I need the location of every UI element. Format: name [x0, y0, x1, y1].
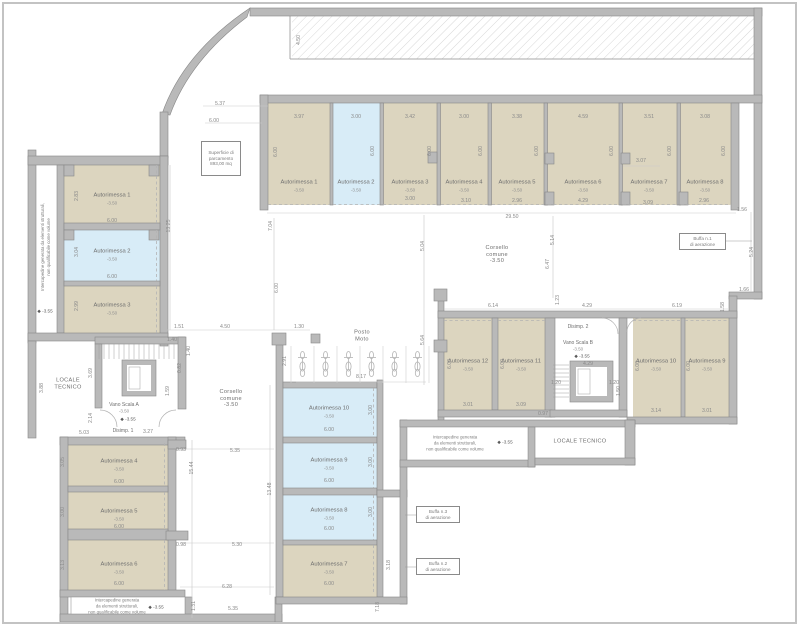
dim-label: 6.00	[114, 524, 124, 530]
dim-label: 1.40	[167, 337, 177, 343]
dim-label: 7.04	[268, 221, 274, 231]
room-label-autorimessa-1-left: Autorimessa 1	[93, 193, 130, 200]
dim-label: 2.14	[88, 413, 94, 423]
room-level: -3.50	[107, 310, 117, 315]
dim-label: 3.08	[700, 114, 710, 120]
elevation-marker: ◆ -3.55	[148, 604, 163, 610]
dim-label: 4.29	[583, 361, 593, 367]
room-label-autorimessa-9-center: Autorimessa 9	[310, 458, 347, 465]
dim-label: 1.31	[191, 601, 197, 611]
room-label-autorimessa-7-top: Autorimessa 7	[630, 180, 667, 187]
room-label-autorimessa-1-top: Autorimessa 1	[280, 180, 317, 187]
dim-label: 6.00	[107, 218, 117, 224]
dim-label: 6.00	[686, 361, 692, 371]
dim-label: 0.98	[176, 542, 186, 548]
dim-label: 13.25	[166, 220, 172, 233]
dim-label: 1.59	[165, 386, 171, 396]
room-label-autorimessa-6-top: Autorimessa 6	[564, 180, 601, 187]
dim-label: 6.14	[488, 303, 498, 309]
dim-label: 6.00	[273, 147, 279, 157]
room-level: -3.50	[351, 187, 361, 192]
room-level: -3.50	[405, 187, 415, 192]
dim-label: 1.50	[616, 386, 622, 396]
dim-label: 13.48	[267, 483, 273, 496]
dim-label: 0.97	[538, 411, 548, 417]
dim-label: 15.44	[189, 462, 195, 475]
room-level: -3.50	[573, 346, 583, 351]
room-level: -3.50	[516, 366, 526, 371]
dim-label: 29.50	[506, 214, 519, 220]
dim-label: 1.58	[720, 302, 726, 312]
room-level: -3.50	[114, 569, 124, 574]
room-label-autorimessa-3-left: Autorimessa 3	[93, 303, 130, 310]
floorplan-canvas: 4.505.376.001.514.501.3013.257.046.002.9…	[0, 0, 800, 627]
dim-label: 3.09	[516, 402, 526, 408]
dim-label: 3.38	[512, 114, 522, 120]
room-level: -3.50	[324, 515, 334, 520]
intercapedine-note-left: Intercapedine generata da elementi strut…	[40, 203, 52, 291]
elevation-marker: ◆ -3.55	[574, 353, 589, 359]
dim-label: 6.00	[107, 274, 117, 280]
dim-label: 3.07	[636, 158, 646, 164]
room-label-autorimessa-2-left: Autorimessa 2	[93, 249, 130, 256]
dim-label: 4.50	[296, 35, 302, 45]
dim-label: 3.09	[643, 200, 653, 206]
dim-label: 1.51	[174, 324, 184, 330]
room-level: -3.50	[700, 187, 710, 192]
room-label-autorimessa-4-top: Autorimessa 4	[445, 180, 482, 187]
dim-label: 3.51	[644, 114, 654, 120]
room-level: -3.50	[119, 408, 129, 413]
vano-scala-a-label: Vano Scala A	[109, 402, 139, 408]
dim-label: 2.83	[74, 191, 80, 201]
intercapedine-note-bottom: Intercapedine generata da elementi strut…	[88, 597, 146, 614]
dim-label: 5.30	[232, 542, 242, 548]
dim-label: 6.00	[370, 146, 376, 156]
dim-label: 6.00	[427, 146, 433, 156]
dim-label: 6.00	[667, 146, 673, 156]
dim-label: 1.23	[555, 295, 561, 305]
vent-callout-3: Buffa n.3 di aerazione	[416, 506, 460, 523]
dim-label: 6.28	[222, 584, 232, 590]
dim-label: 3.00	[405, 196, 415, 202]
dim-label: 3.42	[405, 114, 415, 120]
room-level: -3.50	[651, 366, 661, 371]
dim-label: 2.91	[282, 356, 288, 366]
dim-label: 1.56	[737, 207, 747, 213]
room-label-autorimessa-5-left: Autorimessa 5	[100, 509, 137, 516]
dim-label: 3.00	[351, 114, 361, 120]
room-level: -3.50	[702, 366, 712, 371]
disimpegno-2-label: Disimp. 2	[568, 324, 589, 330]
room-level: -3.50	[107, 256, 117, 261]
dim-label: 3.88	[39, 383, 45, 393]
elevation-marker: ◆ -3.55	[120, 416, 135, 422]
dim-label: 5.35	[230, 448, 240, 454]
room-level: -3.50	[324, 465, 334, 470]
corsello-comune-label-2: Corsello comune -3.50	[220, 389, 243, 409]
room-level: -3.50	[107, 200, 117, 205]
dim-label: 3.14	[651, 408, 661, 414]
dim-label: 6.00	[721, 146, 727, 156]
vent-callout-2: Buffa n.2 di aerazione	[416, 558, 460, 575]
dim-label: 3.04	[74, 247, 80, 257]
intercapedine-note-center: Intercapedine generata da elementi strut…	[426, 434, 484, 451]
dim-label: 3.10	[461, 198, 471, 204]
room-label-autorimessa-10-center: Autorimessa 10	[309, 406, 349, 413]
dim-label: 3.00	[368, 405, 374, 415]
dim-label: 6.00	[534, 146, 540, 156]
dim-label: 8.17	[356, 374, 366, 380]
room-label-autorimessa-11-right: Autorimessa 11	[501, 359, 541, 366]
dim-label: 3.97	[294, 114, 304, 120]
room-level: -3.50	[294, 187, 304, 192]
room-label-autorimessa-6-left: Autorimessa 6	[100, 562, 137, 569]
dim-label: 6.47	[545, 259, 551, 269]
posto-moto-label: Posto Moto	[354, 329, 370, 342]
dim-label: 3.00	[459, 114, 469, 120]
dim-label: 5.14	[550, 235, 556, 245]
dim-label: 4.29	[578, 198, 588, 204]
dim-label: 4.50	[220, 324, 230, 330]
dim-label: 1.20	[551, 380, 561, 386]
room-label-autorimessa-3-top: Autorimessa 3	[391, 180, 428, 187]
dim-label: 5.35	[228, 606, 238, 612]
room-level: -3.50	[324, 569, 334, 574]
dim-label: 2.99	[74, 301, 80, 311]
dim-label: 3.18	[386, 560, 392, 570]
room-level: -3.50	[324, 413, 334, 418]
dim-label: 1.66	[739, 287, 749, 293]
dim-label: 0.93	[176, 447, 186, 453]
dim-label: 5.64	[420, 335, 426, 345]
elevation-marker: ◆ -3.55	[497, 439, 512, 445]
room-level: -3.50	[644, 187, 654, 192]
dim-label: 4.29	[582, 303, 592, 309]
dim-label: 3.27	[143, 429, 153, 435]
dim-label: 6.00	[324, 427, 334, 433]
dim-label: 6.00	[324, 581, 334, 587]
room-label-autorimessa-5-top: Autorimessa 5	[498, 180, 535, 187]
dim-label: 3.00	[368, 457, 374, 467]
elevation-marker: ◆ -3.55	[37, 308, 52, 314]
dim-label: 3.13	[60, 560, 66, 570]
labels-layer: 4.505.376.001.514.501.3013.257.046.002.9…	[0, 0, 800, 627]
dim-label: 4.59	[578, 114, 588, 120]
dim-label: 6.00	[324, 526, 334, 532]
dim-label: 5.24	[749, 247, 755, 257]
dim-label: 6.00	[500, 359, 506, 369]
dim-label: 3.69	[88, 368, 94, 378]
locale-tecnico-left-label: LOCALE TECNICO	[54, 377, 81, 390]
room-label-autorimessa-8-center: Autorimessa 8	[310, 508, 347, 515]
room-label-autorimessa-10-right: Autorimessa 10	[636, 359, 676, 366]
disimpegno-1-label: Disimp. 1	[113, 428, 134, 434]
dim-label: 0.82	[177, 363, 183, 373]
room-level: -3.50	[578, 187, 588, 192]
dim-label: 6.00	[635, 361, 641, 371]
dim-label: 6.00	[609, 146, 615, 156]
dim-label: 1.40	[186, 346, 192, 356]
locale-tecnico-right-label: LOCALE TECNICO	[554, 439, 607, 446]
dim-label: 6.00	[447, 359, 453, 369]
room-level: -3.50	[459, 187, 469, 192]
dim-label: 5.37	[215, 101, 225, 107]
dim-label: 6.00	[478, 146, 484, 156]
dim-label: 5.04	[420, 241, 426, 251]
room-level: -3.50	[512, 187, 522, 192]
room-label-autorimessa-12-right: Autorimessa 12	[448, 359, 488, 366]
dim-label: 3.01	[463, 402, 473, 408]
dim-label: 3.00	[60, 507, 66, 517]
vent-callout-1: Buffa n.1 di aerazione	[679, 233, 726, 250]
room-label-autorimessa-9-right: Autorimessa 9	[688, 359, 725, 366]
dim-label: 3.01	[702, 408, 712, 414]
room-label-autorimessa-4-left: Autorimessa 4	[100, 459, 137, 466]
corsello-comune-label-1: Corsello comune -3.50	[486, 245, 509, 265]
dim-label: 2.96	[699, 198, 709, 204]
room-level: -3.50	[114, 516, 124, 521]
room-label-autorimessa-2-top: Autorimessa 2	[337, 180, 374, 187]
dim-label: 6.19	[672, 303, 682, 309]
dim-label: 6.00	[324, 478, 334, 484]
dim-label: 6.00	[209, 118, 219, 124]
dim-label: 1.30	[294, 324, 304, 330]
dim-label: 3.00	[368, 507, 374, 517]
vano-scala-b-label: Vano Scala B	[563, 340, 593, 346]
dim-label: 7.18	[375, 602, 381, 612]
dim-label: 6.00	[114, 581, 124, 587]
room-label-autorimessa-8-top: Autorimessa 8	[686, 180, 723, 187]
surface-area-note: Superficie di parcamento 893,00 mq	[201, 141, 241, 176]
dim-label: 3.05	[60, 457, 66, 467]
dim-label: 6.00	[274, 283, 280, 293]
dim-label: 6.00	[114, 479, 124, 485]
dim-label: 2.96	[512, 198, 522, 204]
room-level: -3.50	[463, 366, 473, 371]
room-level: -3.50	[114, 466, 124, 471]
dim-label: 5.03	[79, 430, 89, 436]
room-label-autorimessa-7-center: Autorimessa 7	[310, 562, 347, 569]
